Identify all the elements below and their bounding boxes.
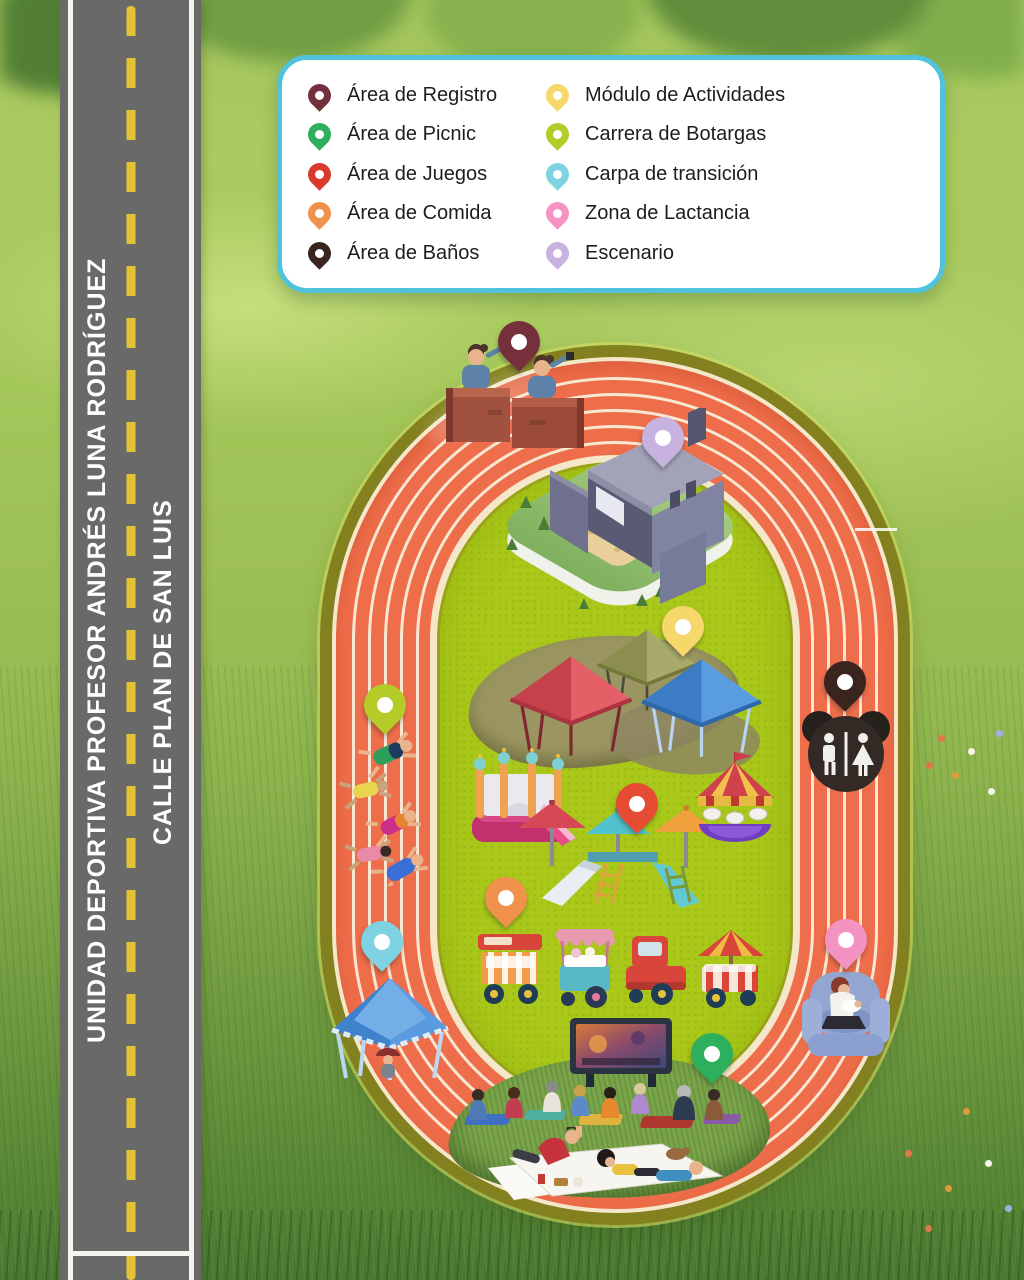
flower-dot	[988, 788, 995, 795]
legend-label: Área de Juegos	[347, 163, 487, 186]
transition-tent-illustration	[326, 972, 454, 1084]
flower-dot	[963, 1108, 970, 1115]
map-marker-modulo-actividades	[662, 606, 704, 657]
map-marker-picnic	[691, 1033, 733, 1084]
legend-item-area-registro: Área de Registro	[308, 77, 546, 113]
legend-item-area-banos: Área de Baños	[308, 235, 546, 271]
map-pin-icon	[541, 79, 574, 112]
legend-label: Zona de Lactancia	[585, 202, 750, 225]
map-marker-lactancia	[825, 919, 867, 970]
mascot-runners-illustration	[336, 726, 441, 886]
icecream-cart-illustration	[552, 925, 618, 1009]
map-marker-juegos	[616, 783, 658, 834]
legend-label: Área de Registro	[347, 84, 497, 107]
road-center-dashes	[126, 6, 135, 1280]
legend-item-area-comida: Área de Comida	[308, 196, 546, 232]
legend-label: Carrera de Botargas	[585, 123, 766, 146]
map-marker-registro	[498, 321, 540, 372]
legend-column-left: Área de RegistroÁrea de PicnicÁrea de Ju…	[308, 77, 546, 271]
legend-label: Área de Comida	[347, 202, 492, 225]
map-pin-icon	[303, 237, 336, 270]
map-pin-icon	[303, 79, 336, 112]
map-pin-icon	[816, 910, 875, 969]
map-pin-icon	[653, 597, 712, 656]
activity-tent-red	[502, 652, 640, 760]
road-edge-line	[189, 0, 194, 1280]
carousel-illustration	[692, 750, 778, 852]
flower-dot	[996, 730, 1003, 737]
map-marker-botargas	[364, 684, 406, 735]
restroom-sign-illustration	[801, 706, 891, 794]
map-pin-icon	[541, 237, 574, 270]
street-label-unidad-deportiva: UNIDAD DEPORTIVA PROFESOR ANDRÉS LUNA RO…	[83, 283, 117, 1043]
flower-dot	[925, 1225, 932, 1232]
map-marker-comida	[485, 877, 527, 928]
legend-label: Escenario	[585, 242, 674, 265]
hotdog-cart-illustration	[476, 928, 546, 1010]
map-pin-icon	[303, 197, 336, 230]
map-pin-icon	[355, 675, 414, 734]
event-map-scene: UNIDAD DEPORTIVA PROFESOR ANDRÉS LUNA RO…	[0, 0, 1024, 1280]
map-marker-carpa-transicion	[361, 921, 403, 972]
legend-label: Área de Baños	[347, 242, 479, 265]
legend-item-zona-lactancia: Zona de Lactancia	[546, 196, 914, 232]
map-pin-icon	[541, 197, 574, 230]
legend-item-carrera-botargas: Carrera de Botargas	[546, 117, 914, 153]
map-pin-icon	[489, 312, 548, 371]
map-pin-icon	[303, 118, 336, 151]
picnic-blanket-illustration	[480, 1126, 730, 1204]
legend-label: Módulo de Actividades	[585, 84, 785, 107]
road-stop-line	[73, 1251, 189, 1256]
flower-dot	[945, 1185, 952, 1192]
map-pin-icon	[682, 1024, 741, 1083]
legend-item-area-juegos: Área de Juegos	[308, 156, 546, 192]
food-truck-illustration	[622, 930, 690, 1008]
legend-column-right: Módulo de ActividadesCarrera de Botargas…	[546, 77, 914, 271]
nursing-chair-illustration	[800, 966, 892, 1061]
map-pin-icon	[541, 118, 574, 151]
map-pin-icon	[607, 774, 666, 833]
map-pin-icon	[352, 912, 411, 971]
legend-panel: Área de RegistroÁrea de PicnicÁrea de Ju…	[277, 55, 945, 293]
map-pin-icon	[541, 158, 574, 191]
map-marker-banos	[824, 661, 866, 712]
road-edge-line	[68, 0, 73, 1280]
flower-dot	[985, 1160, 992, 1167]
street-label-calle-plan-san-luis: CALLE PLAN DE SAN LUIS	[149, 505, 183, 845]
map-pin-icon	[815, 652, 874, 711]
flower-dot	[938, 735, 945, 742]
legend-item-carpa-transicion: Carpa de transición	[546, 156, 914, 192]
umbrella-cart-illustration	[696, 928, 766, 1010]
map-pin-icon	[633, 408, 692, 467]
map-marker-escenario	[642, 417, 684, 468]
track-distance-mark	[855, 528, 897, 531]
legend-item-area-picnic: Área de Picnic	[308, 117, 546, 153]
flower-dot	[926, 762, 933, 769]
legend-label: Área de Picnic	[347, 123, 476, 146]
map-pin-icon	[476, 868, 535, 927]
legend-item-modulo-actividades: Módulo de Actividades	[546, 77, 914, 113]
activity-tent-blue	[634, 655, 769, 761]
legend-label: Carpa de transición	[585, 163, 758, 186]
map-pin-icon	[303, 158, 336, 191]
legend-item-escenario: Escenario	[546, 235, 914, 271]
flower-dot	[952, 772, 959, 779]
stage-illustration	[492, 408, 747, 623]
flower-dot	[968, 748, 975, 755]
flower-dot	[1005, 1205, 1012, 1212]
